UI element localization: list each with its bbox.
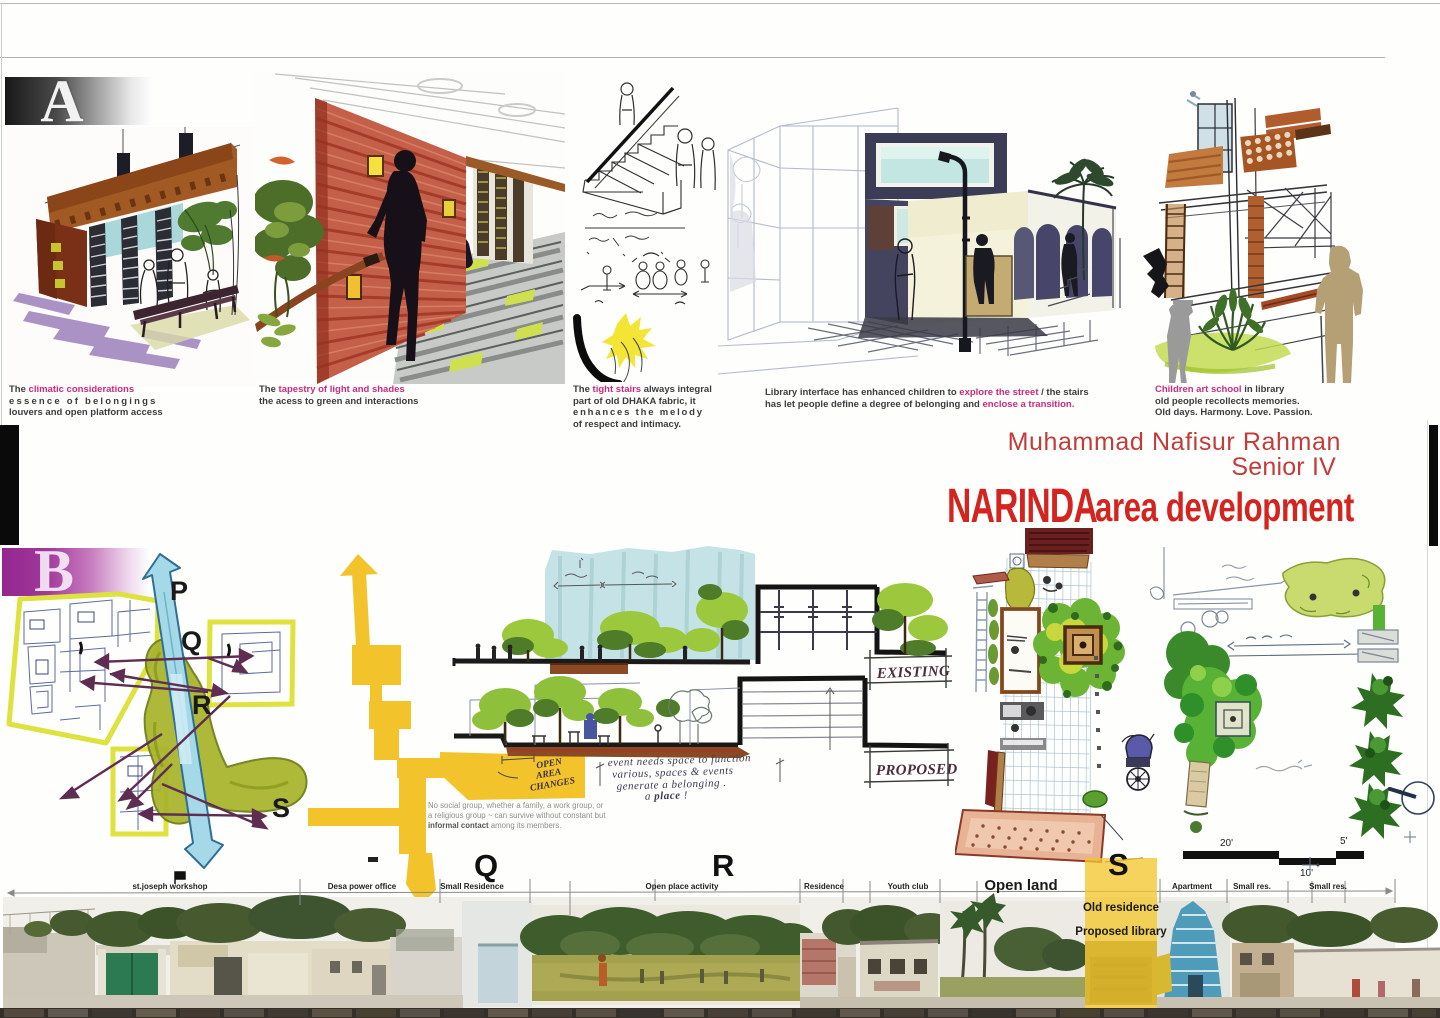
svg-text:Open land: Open land xyxy=(984,877,1057,894)
svg-text:a place !: a place ! xyxy=(645,789,688,802)
svg-text:Small res.: Small res. xyxy=(1309,882,1347,891)
svg-text:Small res.: Small res. xyxy=(1233,882,1271,891)
svg-text:P: P xyxy=(170,576,188,606)
svg-text:R: R xyxy=(712,848,734,883)
svg-text:PROPOSED: PROPOSED xyxy=(876,762,958,779)
svg-text:Proposed library: Proposed library xyxy=(1075,926,1167,938)
svg-text:Youth club: Youth club xyxy=(888,882,929,891)
svg-text:Apartment: Apartment xyxy=(1172,882,1212,891)
svg-text:S: S xyxy=(1108,847,1129,882)
svg-text:Q: Q xyxy=(181,626,202,656)
svg-text:Q: Q xyxy=(474,848,498,883)
svg-text:Open place activity: Open place activity xyxy=(646,882,719,891)
svg-text:Small Residence: Small Residence xyxy=(440,882,504,891)
svg-text:Desa power office: Desa power office xyxy=(328,882,397,891)
svg-text:EXISTING: EXISTING xyxy=(876,663,951,682)
svg-text:st.joseph workshop: st.joseph workshop xyxy=(132,882,207,891)
svg-text:R: R xyxy=(192,690,212,720)
svg-text:Old residence: Old residence xyxy=(1083,902,1159,914)
svg-text:Residence: Residence xyxy=(804,882,845,891)
svg-text:S: S xyxy=(272,793,290,823)
